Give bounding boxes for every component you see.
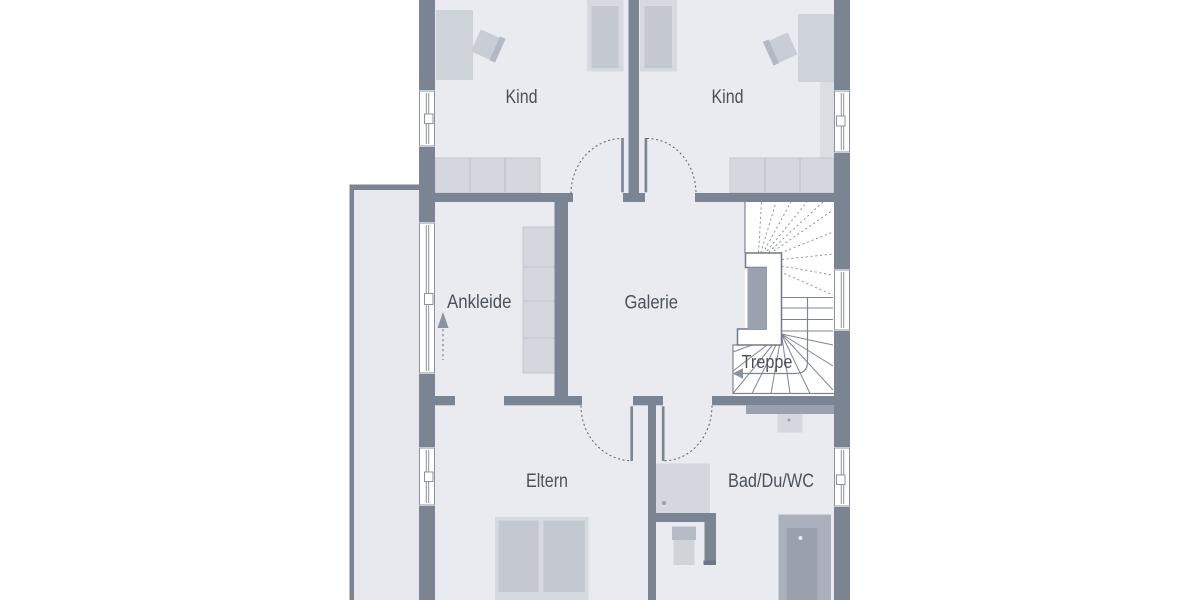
svg-text:Kind: Kind <box>506 86 538 108</box>
svg-text:Kind: Kind <box>712 86 744 108</box>
svg-text:Treppe: Treppe <box>742 351 793 372</box>
svg-text:Galerie: Galerie <box>625 291 679 313</box>
svg-text:Eltern: Eltern <box>526 470 568 492</box>
svg-text:Bad/Du/WC: Bad/Du/WC <box>728 470 814 492</box>
svg-text:Ankleide: Ankleide <box>447 291 512 313</box>
